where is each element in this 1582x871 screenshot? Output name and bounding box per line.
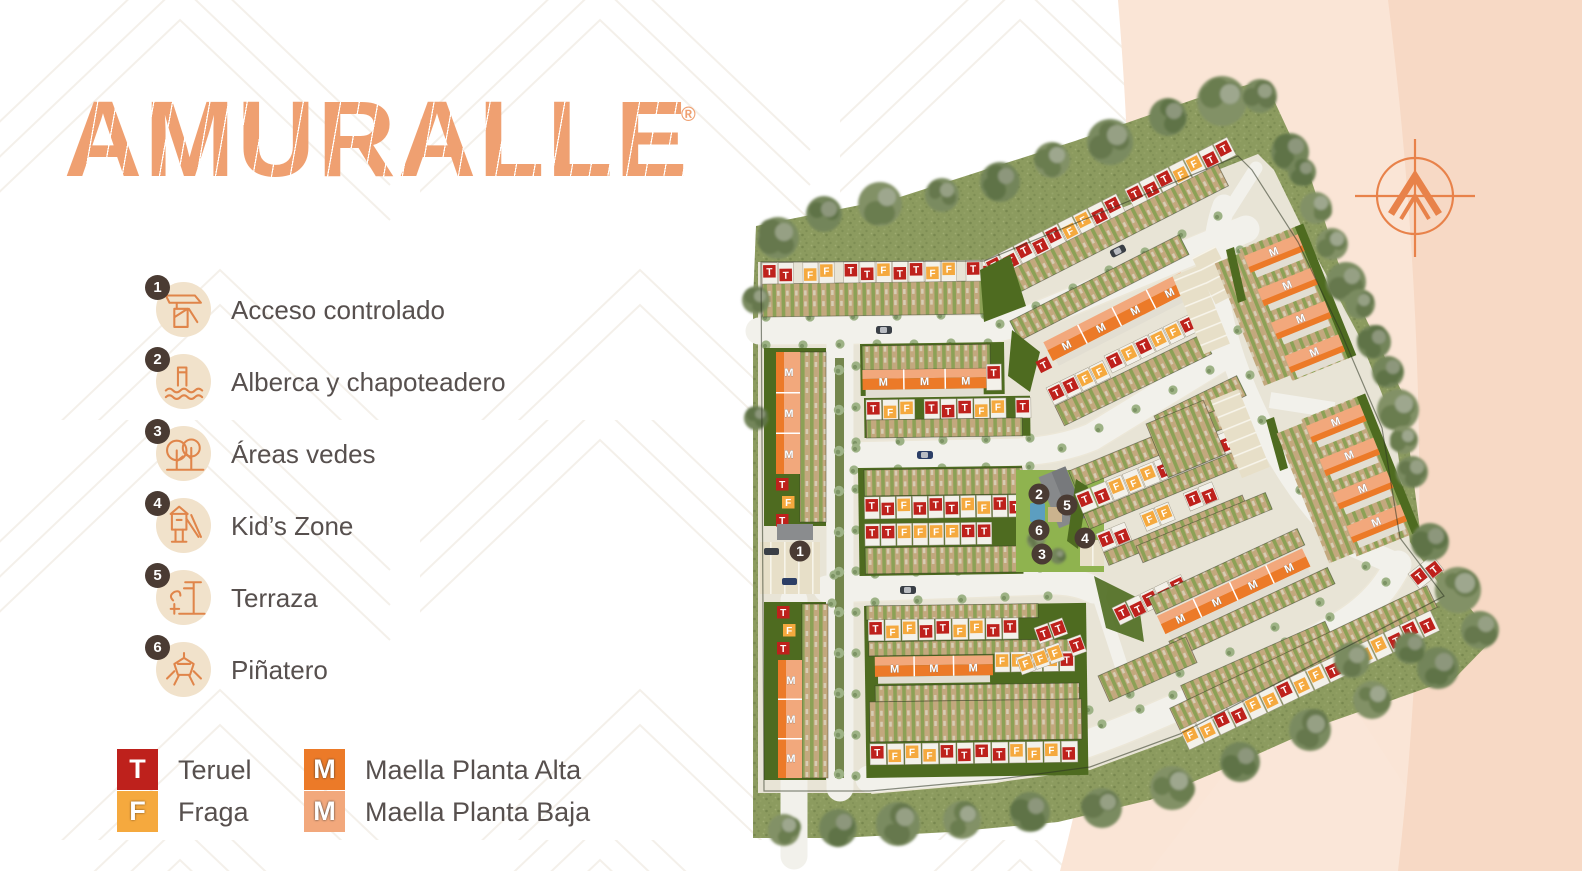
svg-text:T: T [779,480,785,491]
svg-text:M: M [784,367,793,379]
svg-text:M: M [890,664,899,676]
svg-text:M: M [786,675,795,687]
svg-text:F: F [999,656,1005,667]
svg-text:T: T [766,267,772,278]
svg-text:T: T [848,266,854,277]
svg-text:T: T [780,608,786,619]
svg-text:T: T [961,751,967,762]
svg-text:F: F [887,408,893,419]
svg-text:T: T [997,499,1003,510]
svg-text:F: F [904,404,910,415]
svg-text:F: F [892,752,898,763]
svg-text:F: F [973,623,979,634]
svg-text:F: F [995,402,1001,413]
svg-text:T: T [872,624,878,635]
svg-text:F: F [786,626,792,637]
svg-text:T: T [885,505,891,516]
svg-text:F: F [978,406,984,417]
svg-text:T: T [979,747,985,758]
svg-text:F: F [889,628,895,639]
svg-text:M: M [784,408,793,420]
svg-text:F: F [956,627,962,638]
svg-text:T: T [1007,622,1013,633]
svg-text:M: M [879,377,888,389]
svg-text:M: M [920,376,929,388]
svg-text:T: T [981,526,987,537]
svg-text:2: 2 [1035,486,1043,502]
svg-text:T: T [783,271,789,282]
svg-text:T: T [965,527,971,538]
svg-text:T: T [944,747,950,758]
svg-text:F: F [926,751,932,762]
svg-text:F: F [981,503,987,514]
svg-text:F: F [933,527,939,538]
svg-text:T: T [990,368,996,379]
svg-text:M: M [786,714,795,726]
svg-text:F: F [917,527,923,538]
svg-text:T: T [940,623,946,634]
svg-text:F: F [929,269,935,280]
svg-text:M: M [786,753,795,765]
svg-text:T: T [970,264,976,275]
svg-text:F: F [965,500,971,511]
svg-text:F: F [807,270,813,281]
svg-text:F: F [906,624,912,635]
svg-text:T: T [945,407,951,418]
svg-text:M: M [961,375,970,387]
svg-text:T: T [996,750,1002,761]
svg-text:T: T [885,528,891,539]
svg-text:F: F [901,528,907,539]
svg-text:F: F [946,265,952,276]
svg-text:T: T [870,404,876,415]
svg-text:6: 6 [1035,522,1043,538]
svg-text:T: T [874,748,880,759]
svg-text:F: F [785,498,791,509]
svg-text:F: F [823,266,829,277]
svg-text:1: 1 [796,543,804,559]
svg-text:F: F [901,501,907,512]
svg-text:F: F [1013,746,1019,757]
svg-text:F: F [909,748,915,759]
svg-text:T: T [869,501,875,512]
svg-text:F: F [880,265,886,276]
svg-text:T: T [780,644,786,655]
svg-text:T: T [1066,749,1072,760]
svg-text:T: T [913,265,919,276]
svg-text:M: M [784,449,793,461]
svg-text:M: M [929,663,938,675]
svg-text:T: T [864,269,870,280]
svg-text:T: T [869,528,875,539]
svg-text:4: 4 [1081,530,1089,546]
svg-text:F: F [1031,750,1037,761]
svg-text:T: T [1020,402,1026,413]
svg-text:T: T [917,504,923,515]
svg-text:T: T [928,403,934,414]
svg-text:F: F [949,527,955,538]
svg-text:T: T [933,500,939,511]
svg-text:T: T [990,626,996,637]
svg-text:T: T [1064,655,1070,666]
svg-text:M: M [969,662,978,674]
svg-text:T: T [949,504,955,515]
svg-text:3: 3 [1038,546,1046,562]
svg-text:T: T [923,627,929,638]
svg-text:F: F [1048,746,1054,757]
svg-text:5: 5 [1063,497,1071,513]
svg-text:T: T [897,269,903,280]
svg-text:T: T [962,403,968,414]
